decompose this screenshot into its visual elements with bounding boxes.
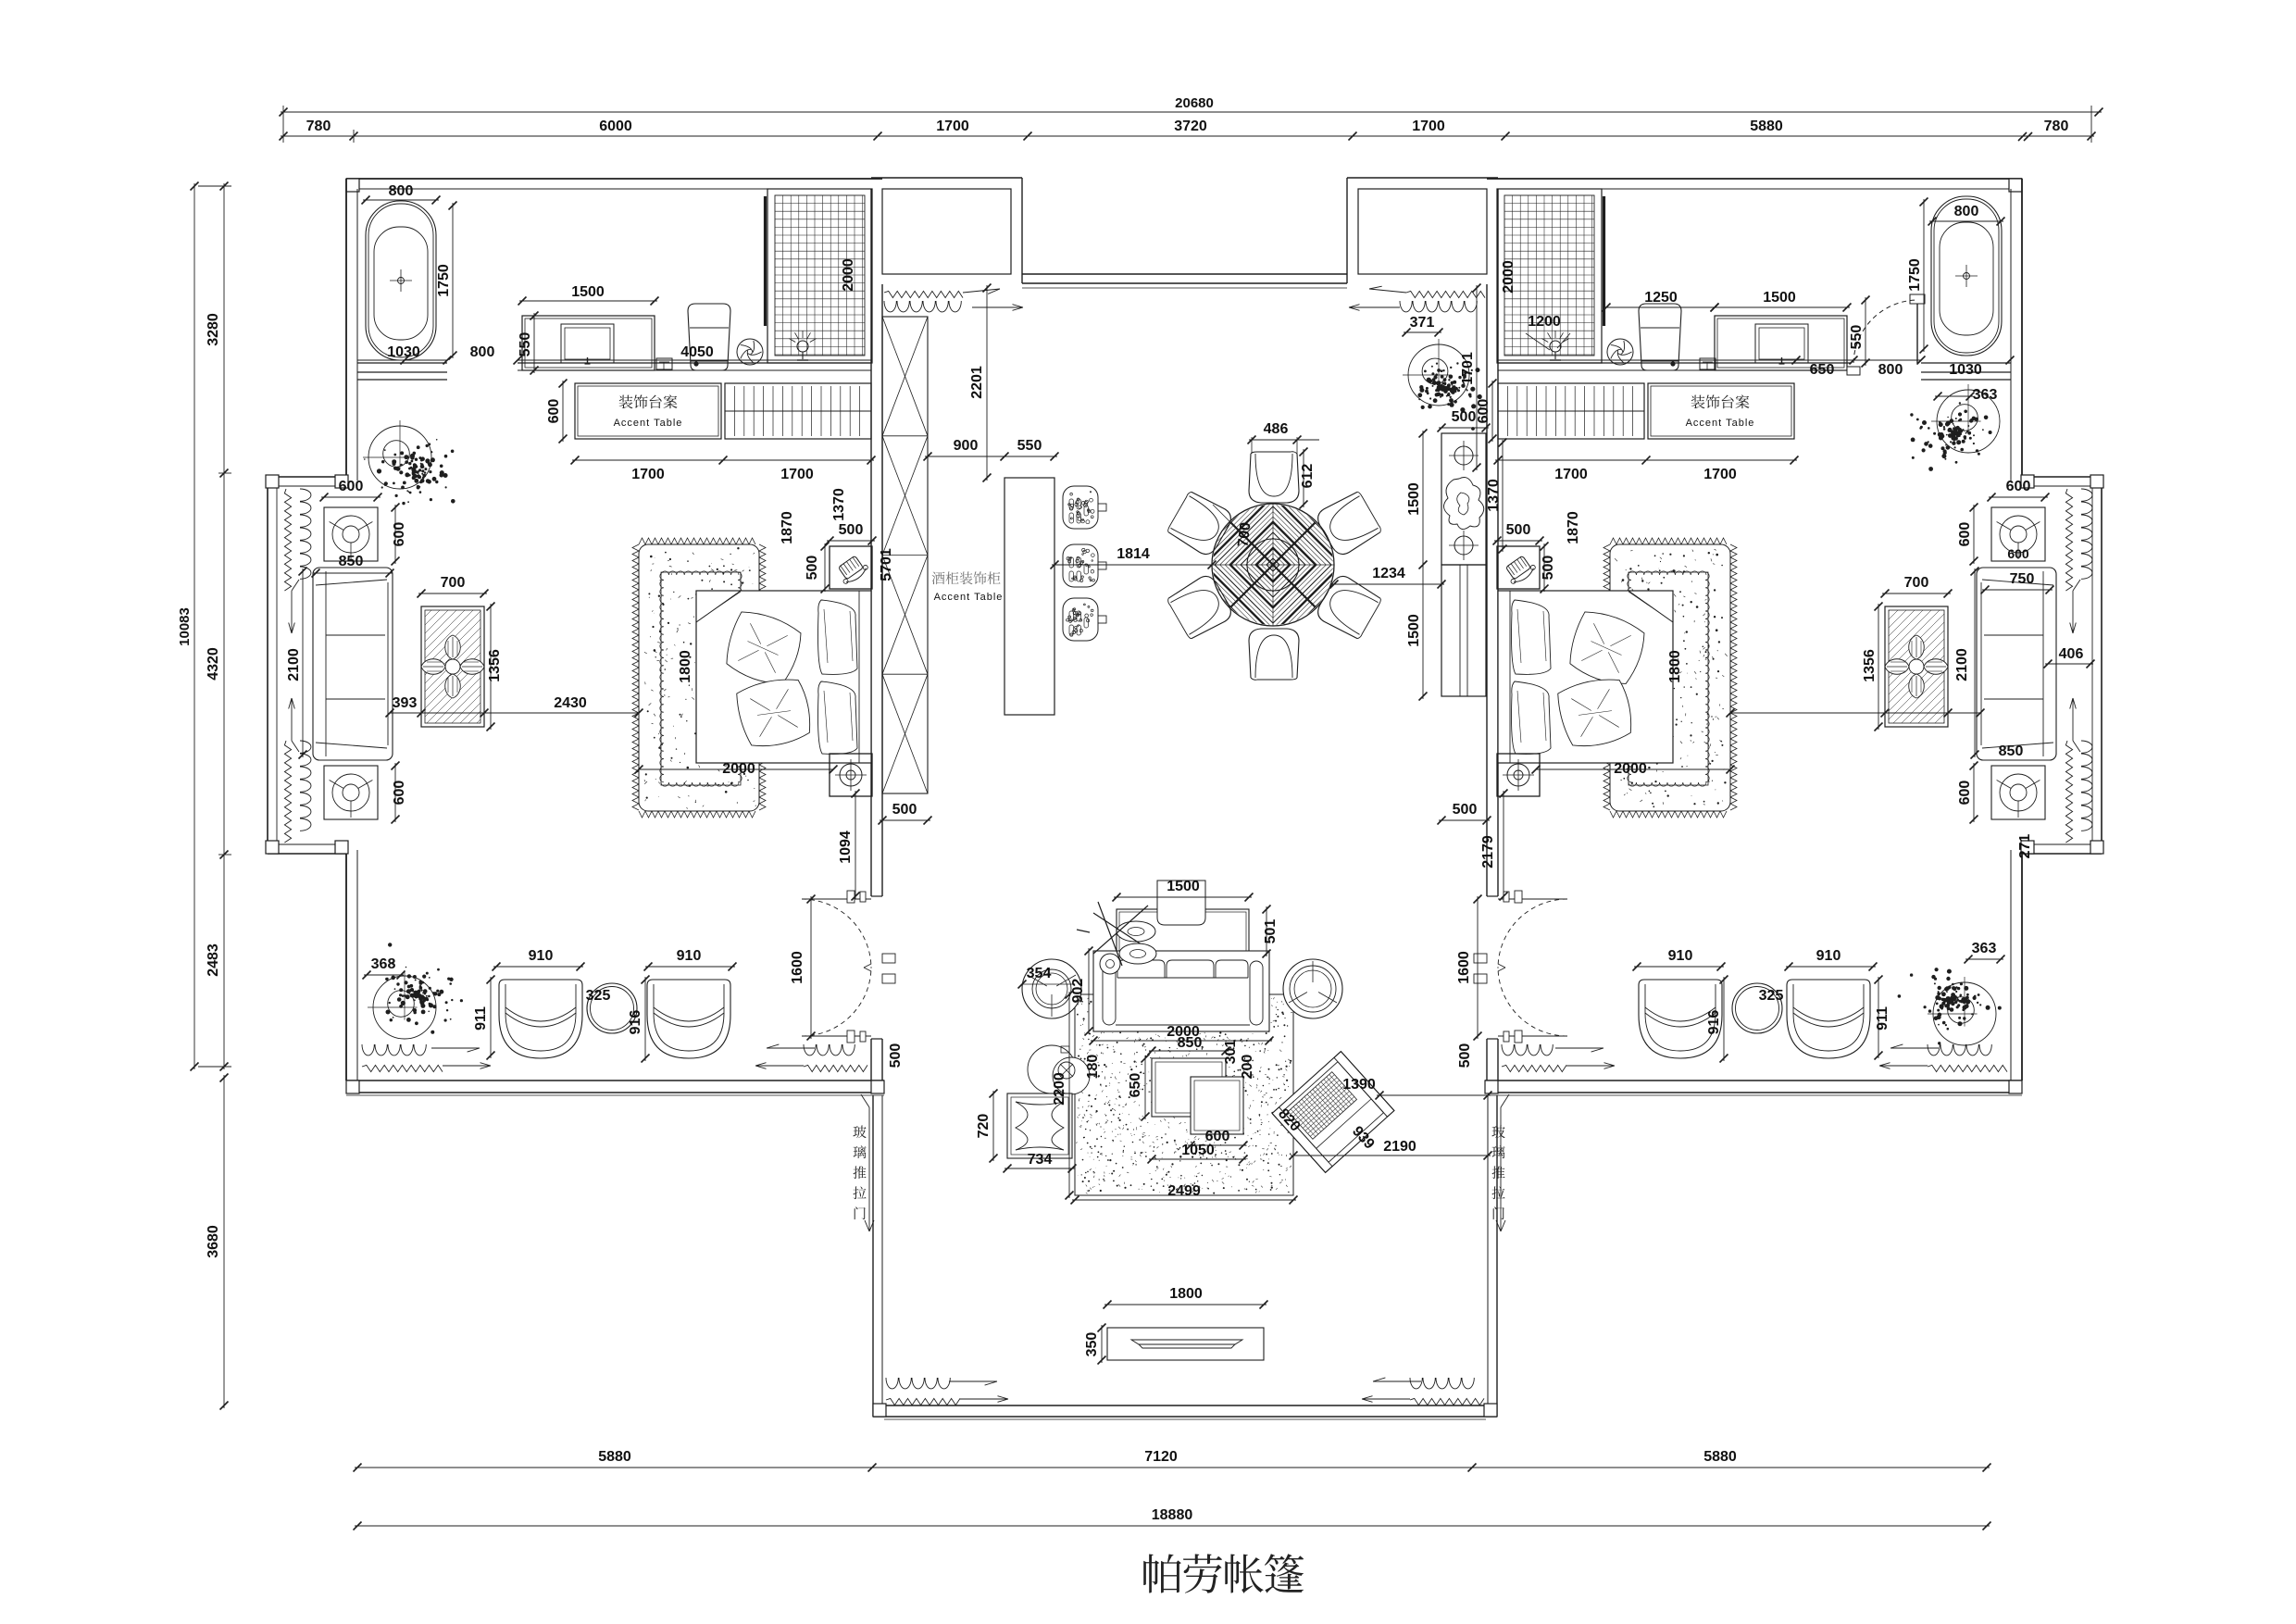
svg-text:850: 850 <box>1178 1035 1203 1051</box>
svg-text:1800: 1800 <box>1667 650 1683 683</box>
svg-text:354: 354 <box>1027 966 1052 981</box>
svg-text:1356: 1356 <box>1862 649 1878 682</box>
svg-text:1370: 1370 <box>831 488 847 521</box>
svg-text:2201: 2201 <box>969 366 985 399</box>
svg-text:1750: 1750 <box>1907 258 1923 292</box>
svg-text:1814: 1814 <box>1117 546 1150 562</box>
svg-text:363: 363 <box>1972 941 1997 956</box>
svg-text:1600: 1600 <box>790 951 805 984</box>
svg-text:650: 650 <box>1810 362 1835 378</box>
svg-text:301: 301 <box>1223 1040 1239 1065</box>
svg-text:916: 916 <box>628 1010 643 1035</box>
svg-text:1356: 1356 <box>487 649 503 682</box>
svg-text:1700: 1700 <box>1412 119 1445 134</box>
svg-text:1750: 1750 <box>436 264 452 297</box>
svg-text:800: 800 <box>1954 204 1979 219</box>
svg-text:350: 350 <box>1084 1332 1100 1357</box>
svg-text:600: 600 <box>1957 781 1973 806</box>
svg-text:2483: 2483 <box>206 943 221 977</box>
svg-text:501: 501 <box>1263 919 1279 944</box>
svg-text:780: 780 <box>306 119 331 134</box>
svg-text:900: 900 <box>954 438 979 454</box>
svg-text:3280: 3280 <box>206 313 221 346</box>
svg-text:500: 500 <box>888 1043 904 1068</box>
svg-text:200: 200 <box>1240 1055 1255 1080</box>
svg-text:500: 500 <box>1457 1043 1473 1068</box>
svg-text:1500: 1500 <box>1763 290 1796 306</box>
svg-text:2179: 2179 <box>1480 835 1496 868</box>
svg-text:910: 910 <box>529 948 554 964</box>
svg-text:5701: 5701 <box>879 548 894 581</box>
svg-text:2100: 2100 <box>286 648 302 681</box>
svg-text:600: 600 <box>339 479 364 494</box>
svg-text:600: 600 <box>2006 479 2031 494</box>
svg-text:406: 406 <box>2059 646 2084 662</box>
svg-text:18880: 18880 <box>1152 1507 1193 1523</box>
svg-text:600: 600 <box>1476 399 1491 424</box>
svg-text:700: 700 <box>1904 575 1929 591</box>
svg-text:750: 750 <box>2010 571 2035 587</box>
svg-text:2499: 2499 <box>1167 1183 1201 1199</box>
svg-text:1250: 1250 <box>1644 290 1678 306</box>
svg-text:780: 780 <box>2044 119 2069 134</box>
svg-text:2000: 2000 <box>1501 260 1516 294</box>
svg-text:1094: 1094 <box>838 831 854 864</box>
svg-text:2000: 2000 <box>841 258 856 292</box>
svg-text:1800: 1800 <box>1169 1286 1203 1302</box>
svg-text:2100: 2100 <box>1954 648 1970 681</box>
svg-text:325: 325 <box>1759 988 1784 1004</box>
svg-text:600: 600 <box>1957 522 1973 547</box>
svg-text:550: 550 <box>1017 438 1042 454</box>
svg-text:Accent Table: Accent Table <box>614 418 683 429</box>
svg-text:1500: 1500 <box>1406 482 1422 516</box>
svg-text:7120: 7120 <box>1144 1449 1178 1465</box>
svg-text:371: 371 <box>1410 315 1435 331</box>
svg-text:500: 500 <box>1452 409 1477 425</box>
svg-text:1200: 1200 <box>1528 314 1561 330</box>
svg-text:700: 700 <box>1235 521 1254 548</box>
svg-text:500: 500 <box>892 802 917 818</box>
svg-text:800: 800 <box>389 183 414 199</box>
svg-text:3680: 3680 <box>206 1225 221 1258</box>
svg-text:180: 180 <box>1085 1055 1101 1080</box>
svg-text:500: 500 <box>1453 802 1478 818</box>
svg-text:1600: 1600 <box>1456 951 1472 984</box>
svg-text:1701: 1701 <box>1460 352 1476 385</box>
svg-text:1500: 1500 <box>1167 879 1200 894</box>
svg-text:500: 500 <box>1541 556 1556 581</box>
svg-text:1370: 1370 <box>1486 479 1502 512</box>
svg-text:2000: 2000 <box>722 761 755 777</box>
svg-text:486: 486 <box>1264 421 1289 437</box>
svg-text:600: 600 <box>546 399 562 424</box>
svg-text:550: 550 <box>518 332 533 357</box>
svg-text:911: 911 <box>1875 1006 1890 1031</box>
svg-text:3720: 3720 <box>1174 119 1207 134</box>
svg-text:Accent Table: Accent Table <box>934 592 1004 603</box>
svg-text:1700: 1700 <box>936 119 969 134</box>
svg-text:1700: 1700 <box>1554 467 1588 482</box>
svg-text:916: 916 <box>1706 1010 1722 1035</box>
svg-text:6000: 6000 <box>599 119 632 134</box>
svg-text:1700: 1700 <box>631 467 665 482</box>
svg-text:393: 393 <box>393 695 418 711</box>
svg-text:600: 600 <box>392 781 407 806</box>
svg-text:1234: 1234 <box>1372 566 1405 581</box>
svg-text:650: 650 <box>1128 1073 1143 1098</box>
svg-text:734: 734 <box>1028 1152 1053 1168</box>
svg-text:1500: 1500 <box>1406 614 1422 647</box>
svg-text:1870: 1870 <box>1566 511 1581 544</box>
svg-text:5880: 5880 <box>598 1449 631 1465</box>
svg-text:600: 600 <box>392 522 407 547</box>
svg-text:500: 500 <box>1506 522 1531 538</box>
svg-text:612: 612 <box>1300 464 1316 489</box>
svg-text:20680: 20680 <box>1175 95 1214 111</box>
svg-text:4050: 4050 <box>680 344 714 360</box>
svg-text:850: 850 <box>339 554 364 569</box>
svg-text:1050: 1050 <box>1181 1143 1215 1158</box>
svg-text:2200: 2200 <box>1052 1072 1067 1106</box>
svg-text:720: 720 <box>976 1114 992 1139</box>
svg-text:600: 600 <box>2007 546 2029 561</box>
svg-text:1800: 1800 <box>678 650 693 683</box>
svg-text:1030: 1030 <box>1949 362 1982 378</box>
svg-text:500: 500 <box>839 522 864 538</box>
svg-text:1030: 1030 <box>387 344 420 360</box>
svg-text:550: 550 <box>1849 325 1865 350</box>
svg-text:5880: 5880 <box>1703 1449 1737 1465</box>
svg-text:1700: 1700 <box>1703 467 1737 482</box>
svg-text:1390: 1390 <box>1342 1077 1376 1093</box>
svg-text:850: 850 <box>1999 743 2024 759</box>
svg-text:368: 368 <box>371 956 396 972</box>
svg-text:1870: 1870 <box>780 511 795 544</box>
svg-text:500: 500 <box>805 556 820 581</box>
svg-text:910: 910 <box>1816 948 1841 964</box>
svg-text:5880: 5880 <box>1750 119 1783 134</box>
svg-text:2190: 2190 <box>1383 1139 1416 1155</box>
svg-text:363: 363 <box>1973 387 1998 403</box>
svg-text:2000: 2000 <box>1614 761 1647 777</box>
svg-text:4320: 4320 <box>206 647 221 681</box>
svg-text:1500: 1500 <box>571 284 605 300</box>
svg-text:325: 325 <box>586 988 611 1004</box>
svg-text:910: 910 <box>677 948 702 964</box>
svg-text:2430: 2430 <box>554 695 587 711</box>
svg-text:10083: 10083 <box>177 607 193 646</box>
svg-text:271: 271 <box>2017 834 2033 859</box>
svg-text:800: 800 <box>1878 362 1903 378</box>
svg-text:1700: 1700 <box>780 467 814 482</box>
svg-text:910: 910 <box>1668 948 1693 964</box>
svg-text:800: 800 <box>470 344 495 360</box>
svg-text:700: 700 <box>441 575 466 591</box>
svg-text:Accent Table: Accent Table <box>1686 418 1755 429</box>
svg-text:911: 911 <box>473 1006 489 1031</box>
